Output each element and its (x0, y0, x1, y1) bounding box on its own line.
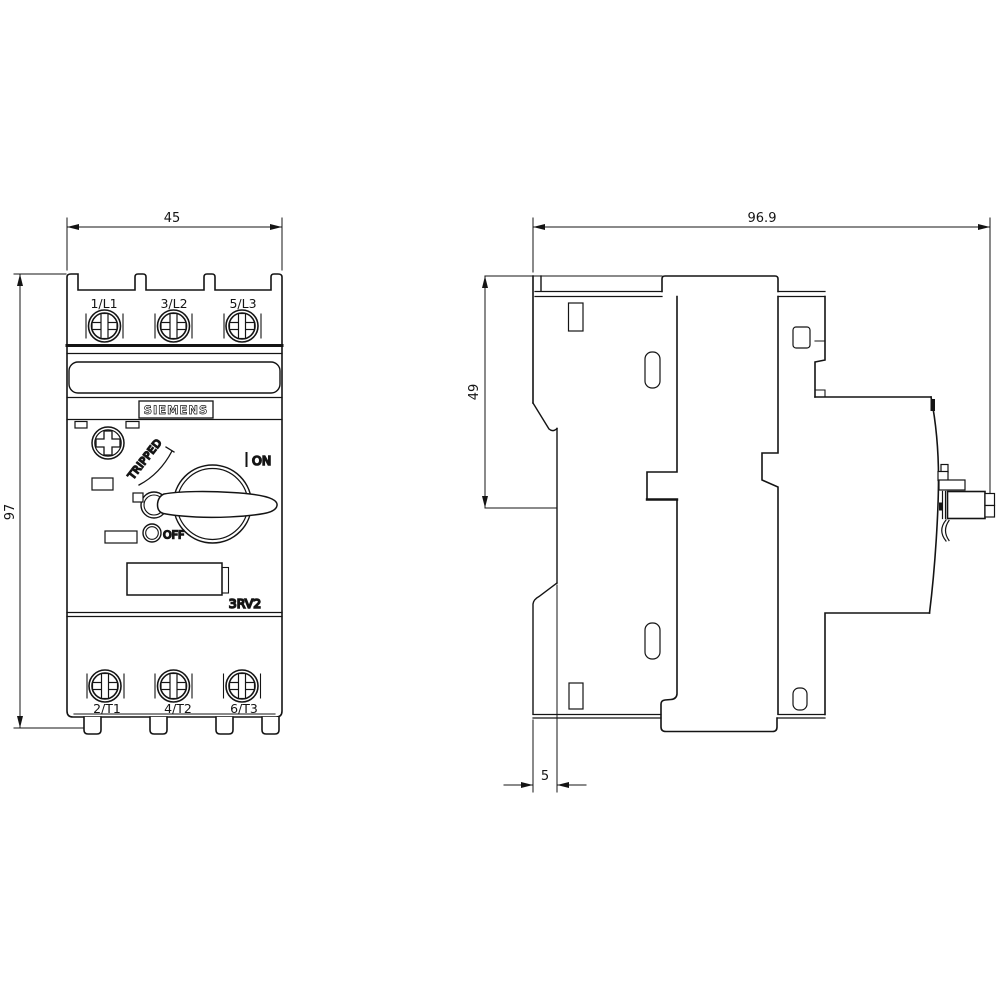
terminal-labels-top: 1/L1 3/L2 5/L3 (90, 296, 256, 311)
front-foot (216, 717, 233, 734)
knob-handle (158, 492, 278, 518)
terminal-label: 5/L3 (229, 296, 256, 311)
terminal-label: 4/T2 (164, 701, 192, 716)
dim-height-value: 97 (3, 504, 18, 521)
terminal-label: 2/T1 (93, 701, 121, 716)
adjustment-dial (92, 427, 124, 459)
terminal-labels-bottom: 2/T1 4/T2 6/T3 (93, 701, 258, 716)
side-face-detail (931, 399, 936, 411)
knob-mark (133, 493, 143, 502)
side-knob-handle (948, 492, 986, 519)
off-circle-icon (146, 527, 159, 540)
model-label: 3RV2 (229, 596, 261, 611)
brand-label: SIEMENS (144, 403, 209, 417)
dim-depth-value: 96.9 (748, 211, 777, 226)
front-foot (84, 717, 101, 734)
off-label: OFF (163, 529, 184, 542)
front-foot (262, 717, 279, 734)
on-label: ON (252, 453, 271, 468)
drawing-canvas: SIEMENS 1/L1 3/L2 5/L3 (0, 0, 1000, 1000)
terminal-label: 6/T3 (230, 701, 258, 716)
front-foot (150, 717, 167, 734)
terminal-label: 3/L2 (160, 296, 187, 311)
terminal-label: 1/L1 (90, 296, 117, 311)
drawing-page: SIEMENS 1/L1 3/L2 5/L3 (0, 0, 1000, 1000)
dim-rail-offset-value: 5 (541, 769, 549, 784)
dim-upper-depth-value: 49 (467, 384, 482, 401)
dim-width-value: 45 (164, 211, 181, 226)
